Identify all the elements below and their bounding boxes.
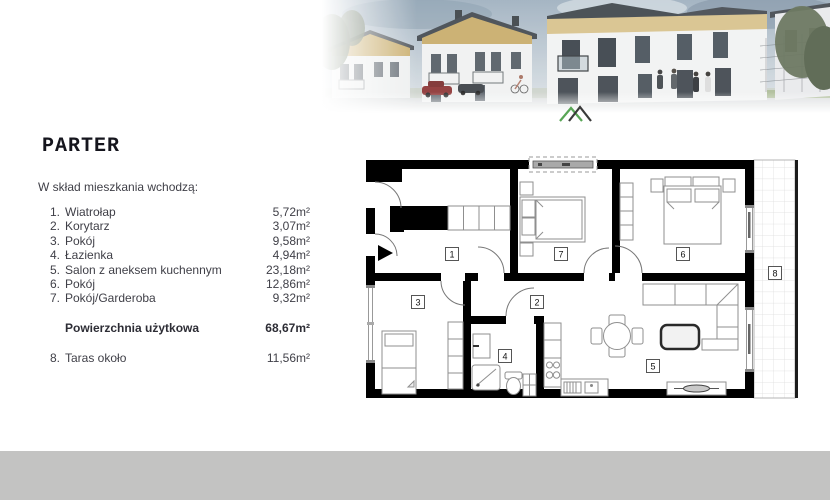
roof-chevrons-logo xyxy=(558,103,594,123)
room-area: 3,07m² xyxy=(246,219,310,233)
room-label: Korytarz xyxy=(65,219,246,233)
plan-label-2: 2 xyxy=(534,298,539,308)
plan-label-3: 3 xyxy=(415,298,420,308)
room-label: Taras około xyxy=(65,351,246,365)
room-list-item: 2. Korytarz 3,07m² xyxy=(38,219,310,233)
room-number: 4. xyxy=(38,248,60,262)
building-render-image xyxy=(322,0,830,113)
room-area: 4,94m² xyxy=(246,248,310,262)
plan-label-4: 4 xyxy=(502,352,507,362)
room3-furniture xyxy=(382,322,463,394)
room6-furniture xyxy=(620,177,735,244)
room-label: Salon z aneksem kuchennym xyxy=(65,263,246,277)
room7-furniture xyxy=(520,182,585,256)
room-area: 11,56m² xyxy=(246,351,310,365)
terrace-row: 8. Taras około 11,56m² xyxy=(38,351,310,365)
room-area: 5,72m² xyxy=(246,205,310,219)
brochure-page: PARTER W skład mieszkania wchodzą: 1. Wi… xyxy=(0,0,830,500)
room-number: 1. xyxy=(38,205,60,219)
room-list-item: 7. Pokój/Garderoba 9,32m² xyxy=(38,291,310,305)
room-number: 8. xyxy=(38,351,60,365)
room-number: 6. xyxy=(38,277,60,291)
room-list-item: 5. Salon z aneksem kuchennym 23,18m² xyxy=(38,263,310,277)
room-list-item: 3. Pokój 9,58m² xyxy=(38,234,310,248)
room-list-item: 6. Pokój 12,86m² xyxy=(38,277,310,291)
room-number: 7. xyxy=(38,291,60,305)
page-title: PARTER xyxy=(42,135,120,158)
floor-plan-drawing: 1 2 3 4 5 6 7 8 xyxy=(366,156,805,404)
spacer xyxy=(38,321,60,335)
plan-label-1: 1 xyxy=(449,250,454,260)
intro-text: W skład mieszkania wchodzą: xyxy=(38,180,198,194)
plan-label-5: 5 xyxy=(650,362,655,372)
footer-bar xyxy=(0,451,830,500)
room-list-item: 4. Łazienka 4,94m² xyxy=(38,248,310,262)
room-label: Pokój xyxy=(65,277,246,291)
room-label: Pokój/Garderoba xyxy=(65,291,246,305)
floor-plan: 1 2 3 4 5 6 7 8 xyxy=(366,156,805,404)
entrance-arrow-icon xyxy=(378,245,393,261)
vestibule-wardrobe xyxy=(448,206,510,230)
plan-label-6: 6 xyxy=(680,250,685,260)
living-room-furniture xyxy=(591,284,738,395)
room-area: 23,18m² xyxy=(246,263,310,277)
total-area-row: Powierzchnia użytkowa 68,67m² xyxy=(38,321,310,335)
plan-label-7: 7 xyxy=(558,250,563,260)
total-area-label: Powierzchnia użytkowa xyxy=(65,321,246,335)
bathroom-fixtures xyxy=(472,334,536,396)
room-list: 1. Wiatrołap 5,72m² 2. Korytarz 3,07m² 3… xyxy=(38,205,310,306)
room-label: Wiatrołap xyxy=(65,205,246,219)
room-label: Łazienka xyxy=(65,248,246,262)
room-number: 5. xyxy=(38,263,60,277)
room-list-item: 1. Wiatrołap 5,72m² xyxy=(38,205,310,219)
plan-label-8: 8 xyxy=(772,269,777,279)
total-area-value: 68,67m² xyxy=(246,321,310,335)
building-render xyxy=(322,0,830,113)
room-number: 2. xyxy=(38,219,60,233)
room-area: 12,86m² xyxy=(246,277,310,291)
room-area: 9,58m² xyxy=(246,234,310,248)
room-label: Pokój xyxy=(65,234,246,248)
room-number: 3. xyxy=(38,234,60,248)
room-area: 9,32m² xyxy=(246,291,310,305)
